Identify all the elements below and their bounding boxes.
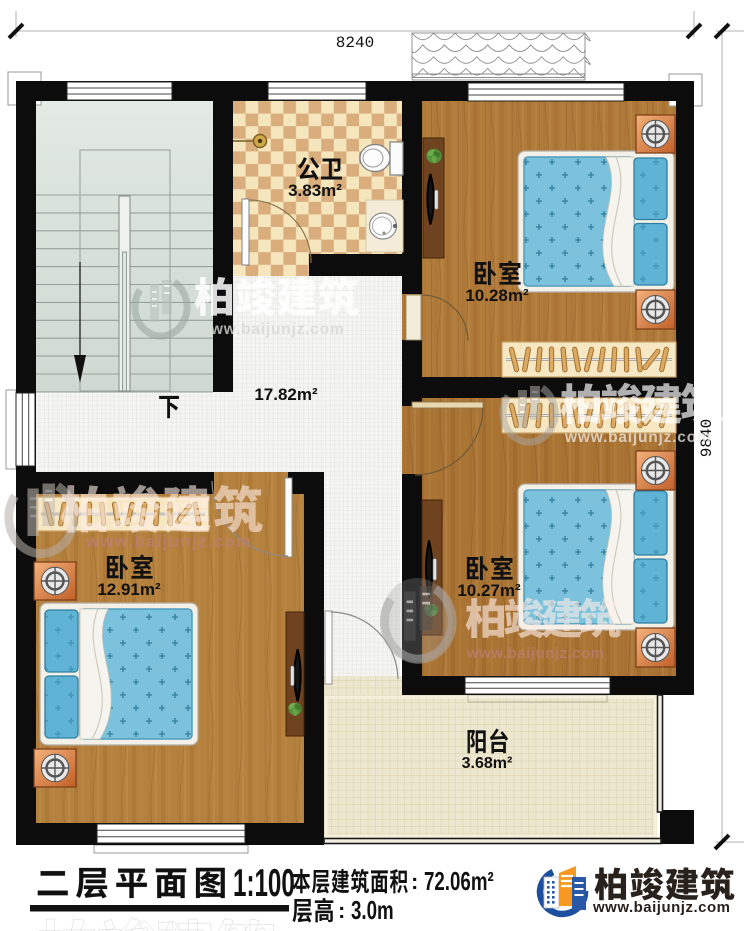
svg-text:72.06m²: 72.06m² (424, 866, 494, 896)
svg-text:www.baijunjz.com: www.baijunjz.com (564, 429, 712, 446)
svg-text:12.91m²: 12.91m² (97, 580, 161, 599)
svg-text:3.0m: 3.0m (351, 895, 394, 925)
svg-text:10.27m²: 10.27m² (457, 581, 521, 600)
svg-text:1:100: 1:100 (233, 861, 295, 904)
svg-text:3.83m²: 3.83m² (288, 181, 342, 200)
svg-text:8240: 8240 (336, 34, 374, 52)
svg-text:3.68m²: 3.68m² (462, 755, 513, 772)
svg-text:www.baijunjz.com: www.baijunjz.com (466, 645, 604, 662)
svg-text:www.baijunjz.com: www.baijunjz.com (85, 533, 252, 551)
svg-text::: : (411, 869, 418, 894)
svg-text:10.28m²: 10.28m² (465, 286, 529, 305)
svg-text:www.baijunjz.com: www.baijunjz.com (197, 321, 345, 338)
svg-text:17.82m²: 17.82m² (254, 385, 318, 404)
svg-text::: : (338, 898, 345, 923)
svg-text:www.baijunjz.com: www.baijunjz.com (592, 899, 730, 916)
